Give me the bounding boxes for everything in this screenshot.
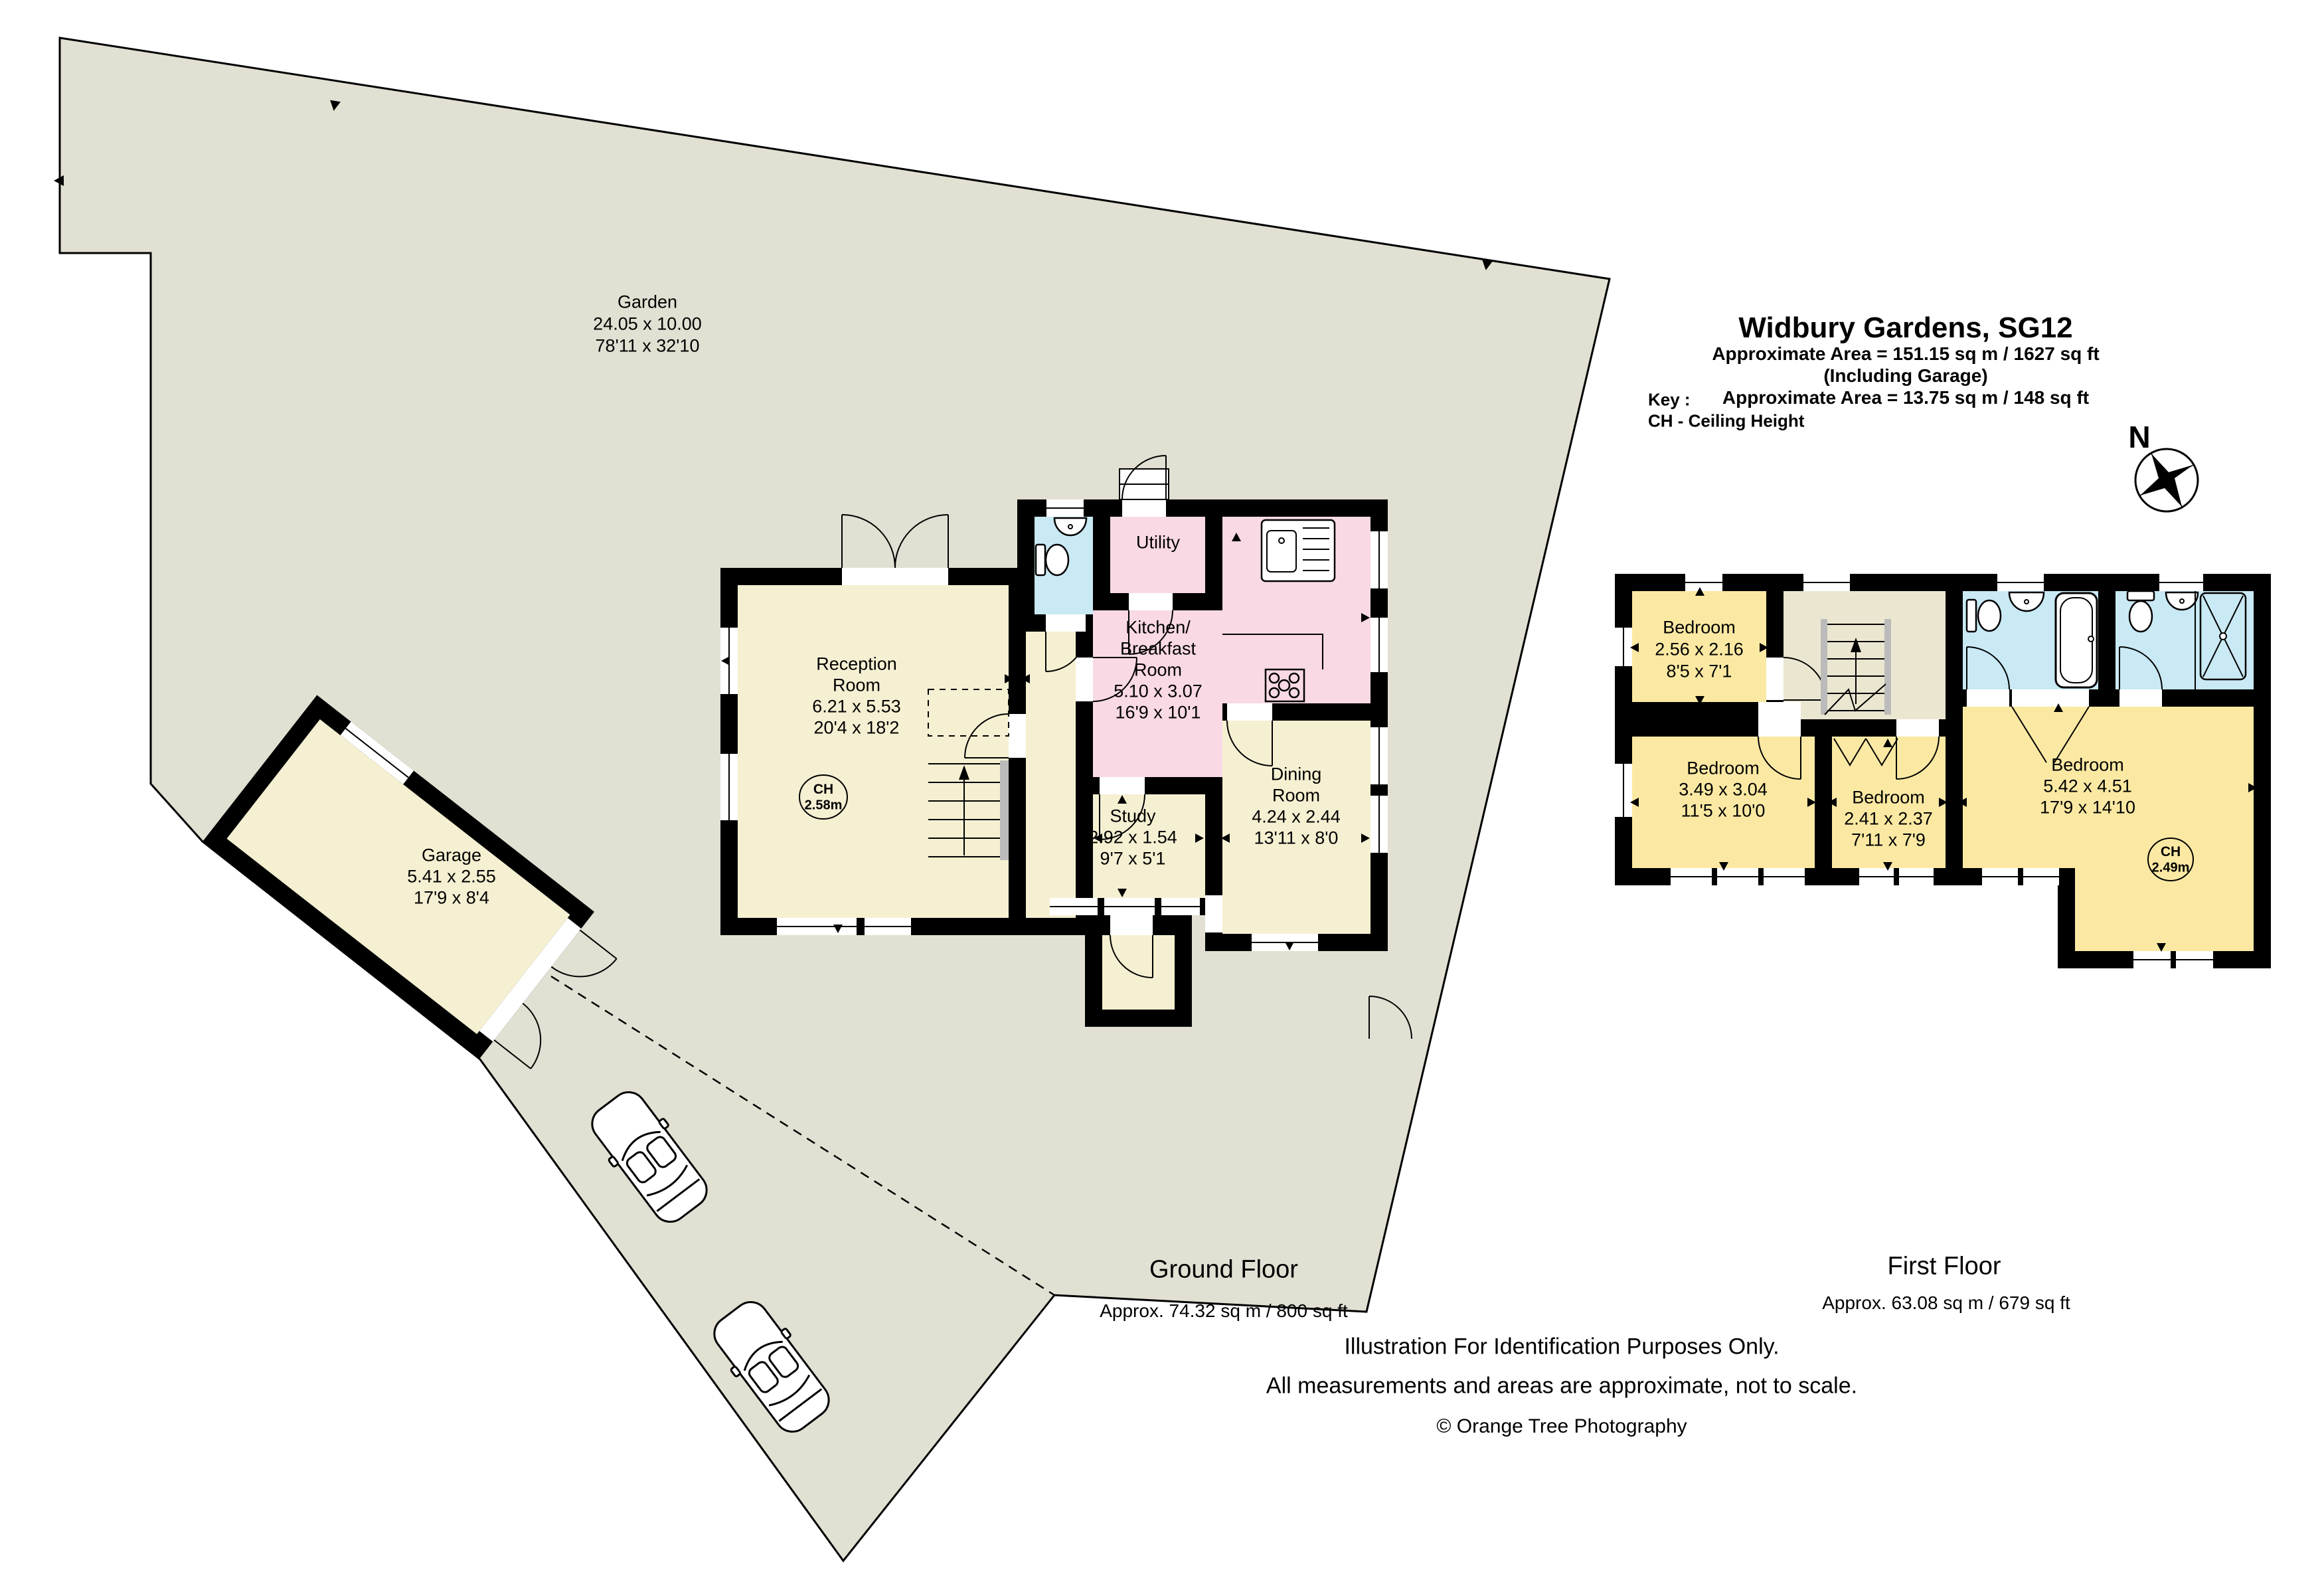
garage-dims-imperial: 17'9 x 8'4 xyxy=(414,888,489,909)
kitchen-label: Kitchen/ xyxy=(1125,618,1191,638)
reception-label2: Room xyxy=(833,675,880,696)
bathroom-toilet xyxy=(1967,600,2001,632)
bedroom-small-label: Bedroom xyxy=(1663,618,1736,638)
kitchen-label2: Breakfast xyxy=(1120,639,1196,660)
copyright: © Orange Tree Photography xyxy=(1436,1415,1687,1438)
bedroom-left-dims-imperial: 11'5 x 10'0 xyxy=(1681,801,1766,822)
page-title: Widbury Gardens, SG12 xyxy=(1738,311,2072,345)
dining-label2: Room xyxy=(1272,786,1320,806)
study-dims-imperial: 9'7 x 5'1 xyxy=(1100,849,1166,869)
ground-floor-label: Ground Floor xyxy=(1149,1256,1298,1284)
key-heading: Key : xyxy=(1648,390,1691,410)
wc-toilet xyxy=(1036,545,1068,575)
hall-floor xyxy=(1026,632,1076,918)
bedroom-left-dims-metric: 3.49 x 3.04 xyxy=(1679,780,1768,800)
dining-dims-imperial: 13'11 x 8'0 xyxy=(1254,828,1339,849)
reception-dims-imperial: 20'4 x 18'2 xyxy=(814,718,900,739)
study-dims-metric: 2.92 x 1.54 xyxy=(1088,828,1177,848)
bathtub xyxy=(2056,593,2097,687)
reception-label: Reception xyxy=(816,654,897,675)
dining-room-floor xyxy=(1222,721,1370,934)
bedroom-master-dims-imperial: 17'9 x 14'10 xyxy=(2040,798,2135,818)
reception-room-floor xyxy=(738,585,1009,918)
floorplan-drawing xyxy=(0,0,2324,1594)
bedroom-master-dims-metric: 5.42 x 4.51 xyxy=(2043,776,2132,797)
garden-dims-imperial: 78'11 x 32'10 xyxy=(596,336,700,357)
bedroom-master-ch-label: CH xyxy=(2161,844,2181,860)
reception-dims-metric: 6.21 x 5.53 xyxy=(812,697,901,717)
study-label: Study xyxy=(1110,806,1155,827)
utility-floor xyxy=(1110,517,1205,593)
dining-label: Dining xyxy=(1271,764,1322,785)
disclaimer-line1: Illustration For Identification Purposes… xyxy=(1344,1334,1779,1360)
first-floor-label: First Floor xyxy=(1888,1253,2001,1281)
porch-floor xyxy=(1102,935,1175,1010)
kitchen-dims-imperial: 16'9 x 10'1 xyxy=(1116,703,1201,723)
key-item: CH - Ceiling Height xyxy=(1648,411,1804,432)
kitchen-dims-metric: 5.10 x 3.07 xyxy=(1114,681,1203,702)
bedroom-small-dims-imperial: 8'5 x 7'1 xyxy=(1667,662,1732,682)
bedroom-middle-dims-metric: 2.41 x 2.37 xyxy=(1844,809,1933,830)
bedroom-left-label: Bedroom xyxy=(1687,758,1760,779)
disclaimer-line2: All measurements and areas are approxima… xyxy=(1266,1373,1857,1399)
total-area: Approximate Area = 151.15 sq m / 1627 sq… xyxy=(1712,343,2099,365)
bedroom-master-ch-value: 2.49m xyxy=(2152,861,2190,876)
kitchen-sink xyxy=(1262,520,1335,581)
garden-dims-metric: 24.05 x 10.00 xyxy=(593,314,702,335)
dining-dims-metric: 4.24 x 2.44 xyxy=(1252,807,1341,828)
garden-label: Garden xyxy=(618,292,677,313)
garage-dims-metric: 5.41 x 2.55 xyxy=(407,867,496,887)
bedroom-master-label: Bedroom xyxy=(2051,755,2124,776)
first-floor-area: Approx. 63.08 sq m / 679 sq ft xyxy=(1822,1292,2070,1314)
garage-area: Approximate Area = 13.75 sq m / 148 sq f… xyxy=(1722,387,2089,408)
floorplan-page: Widbury Gardens, SG12 Approximate Area =… xyxy=(0,0,2324,1594)
including-garage: (Including Garage) xyxy=(1823,365,1987,387)
bedroom-small-dims-metric: 2.56 x 2.16 xyxy=(1655,640,1744,660)
utility-label: Utility xyxy=(1136,533,1180,553)
compass-rose xyxy=(2135,449,2198,511)
bedroom-middle-label: Bedroom xyxy=(1852,788,1925,808)
kitchen-label3: Room xyxy=(1134,660,1182,681)
reception-ch-value: 2.58m xyxy=(805,798,843,814)
ground-floor-area: Approx. 74.32 sq m / 800 sq ft xyxy=(1100,1300,1348,1322)
bedroom-middle-dims-imperial: 7'11 x 7'9 xyxy=(1851,830,1926,851)
shower-room-toilet xyxy=(2127,591,2154,632)
north-label: N xyxy=(2128,419,2150,455)
garage-label: Garage xyxy=(422,845,481,866)
reception-ch-label: CH xyxy=(813,782,833,798)
